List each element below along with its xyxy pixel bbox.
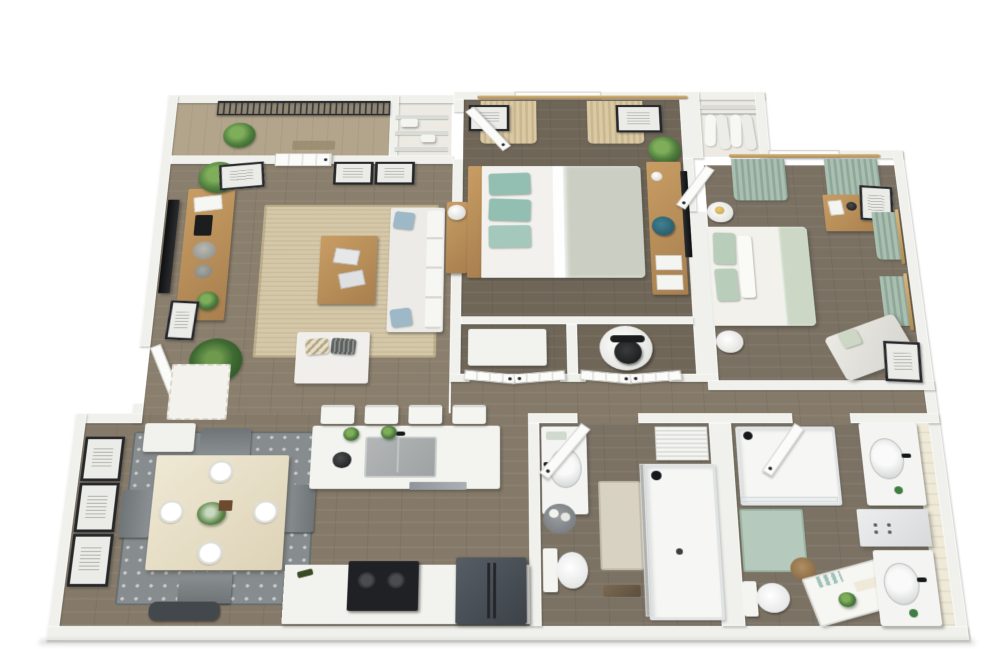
bed2-side-table-bottom <box>715 331 744 353</box>
dining-frame-2 <box>73 483 119 532</box>
bedroom1-frame-right <box>615 105 662 132</box>
ground-shadow <box>39 639 975 645</box>
wall-art-1 <box>333 162 374 185</box>
wall-art-2 <box>374 162 414 185</box>
wall-living-bed1-a <box>454 100 464 112</box>
bedroom2-curtain-rod <box>729 154 880 158</box>
corner-art-frame <box>219 161 265 190</box>
console-black-tray <box>193 215 213 236</box>
hanging-garment-3 <box>730 114 742 147</box>
nook-desk <box>468 329 547 366</box>
entry-doormat <box>166 364 231 420</box>
sofa-back-cushions <box>425 211 444 329</box>
dining-bench <box>148 602 221 621</box>
leaning-art-frame <box>164 300 199 340</box>
wall-nook-top <box>461 316 693 324</box>
coffee-table <box>317 236 377 304</box>
bed1-pillow-teal-3 <box>488 225 531 248</box>
hanging-garment-1 <box>705 114 717 146</box>
desk-chair-teal <box>651 216 675 235</box>
bedroom2-curtain-left <box>731 159 788 200</box>
desk-orb-lamp <box>651 172 663 181</box>
bed1-pillow-teal-1 <box>488 173 531 196</box>
closet1-shelf-3 <box>395 147 448 151</box>
fridge-handles <box>487 563 490 619</box>
bedroom1-curtain-rod <box>477 96 687 99</box>
wall-bottom <box>46 626 970 640</box>
bath2-faucet-top <box>901 454 911 458</box>
ladder-plant <box>838 592 857 607</box>
office-chair-back <box>610 335 645 342</box>
bar-stool-2 <box>364 405 398 424</box>
bedroom1-plant <box>647 137 681 164</box>
bath1-bench <box>603 585 641 597</box>
sofa-pillow-blue-1 <box>393 211 416 230</box>
basket-towel-roll-1 <box>549 509 559 518</box>
bath2-mid-cabinet <box>856 509 932 546</box>
bed1-pillow-teal-2 <box>488 198 531 221</box>
balcony-mat <box>292 141 335 150</box>
mid-cabinet-knobs <box>873 523 877 527</box>
closet1-linens-1 <box>401 119 418 127</box>
dresser-camera <box>846 202 857 211</box>
closet1-linens-2 <box>421 135 436 143</box>
shower1-head <box>651 471 662 481</box>
dining-chair-east <box>282 485 316 533</box>
wall-bath-top-b <box>638 413 793 423</box>
bath1-shower <box>643 464 725 620</box>
bath2-soap-top <box>894 486 904 494</box>
shower1-drain <box>676 548 683 554</box>
bar-stool-4 <box>452 405 486 424</box>
desk-photo-cards-1 <box>655 255 682 270</box>
orb-lamp <box>447 205 466 220</box>
wall-bath-top-a <box>528 413 578 423</box>
armchair-pillow-dark <box>330 338 357 355</box>
side-table-gold-lamp <box>715 206 725 214</box>
bed1-duvet <box>563 166 646 278</box>
bedroom2-frame-bottom <box>883 341 923 383</box>
bath2-faucet-bottom <box>917 577 927 582</box>
sofa-pillow-blue-2 <box>389 307 412 328</box>
bath1-vanity-tray <box>546 432 567 440</box>
bed2-pillow-sage-1 <box>713 232 736 264</box>
dishwasher <box>409 482 466 490</box>
entry-cabinet <box>142 423 196 452</box>
wall-nook-divider <box>566 324 578 374</box>
dining-chair-west <box>117 490 153 538</box>
dining-chair-north <box>198 428 251 457</box>
closet2-shelf <box>700 105 756 109</box>
balcony-door <box>275 153 333 166</box>
dining-frame-3 <box>66 534 113 587</box>
range-cooktop <box>347 561 419 611</box>
tub-glass-panel <box>740 497 838 502</box>
island-sink <box>364 437 437 478</box>
shower2-head <box>743 432 753 440</box>
refrigerator <box>455 557 527 624</box>
centerpiece-box <box>218 500 232 511</box>
bath1-linen-cabinet <box>655 427 710 461</box>
armchair-pillow-chevron <box>305 337 329 355</box>
bed1-headboard <box>467 166 482 278</box>
dining-chair-south <box>177 572 233 603</box>
floor-plan-render: { "scene": { "type": "3d-floor-plan", "v… <box>0 0 1000 649</box>
bath1-toilet-bowl <box>556 552 588 589</box>
dining-frame-1 <box>80 437 125 481</box>
bath2-soap-bottom <box>909 609 919 617</box>
office-chair <box>614 340 642 364</box>
bar-stool-1 <box>320 405 355 424</box>
balcony-railing <box>217 101 391 115</box>
bath1-towel-basket <box>543 504 576 534</box>
magazine-1 <box>333 248 361 266</box>
island-faucet <box>396 432 406 436</box>
bath1-mat <box>598 481 644 570</box>
wall-bath-top-c <box>850 413 940 423</box>
desk-photo-cards-2 <box>656 275 684 290</box>
basket-towel-roll-2 <box>561 513 571 522</box>
bar-stool-3 <box>408 405 442 424</box>
bed2-pillow-sage-2 <box>714 268 740 301</box>
apartment-plan <box>25 85 975 645</box>
